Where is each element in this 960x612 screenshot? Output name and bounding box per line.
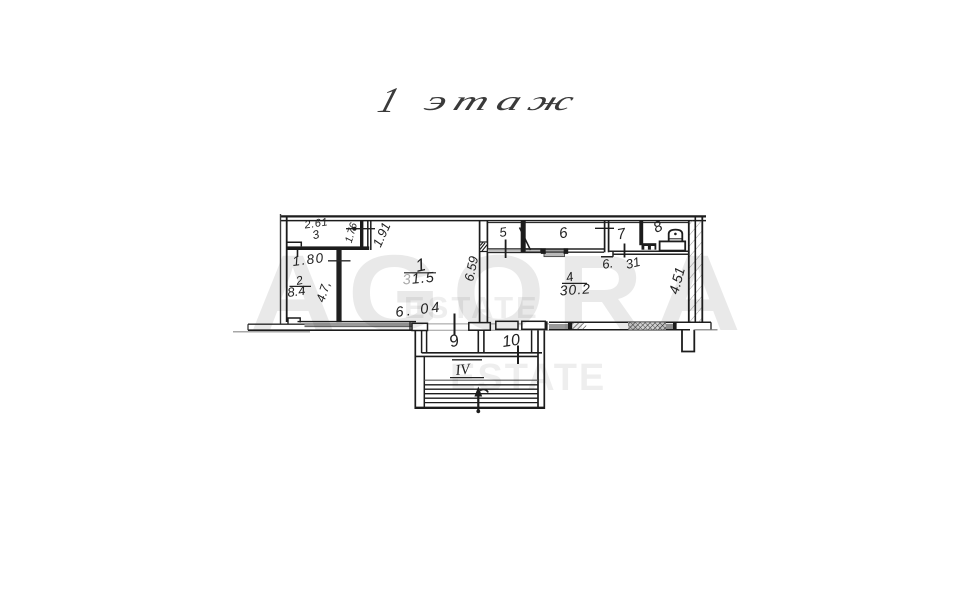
svg-text:этаж: этаж <box>421 85 587 116</box>
svg-text:ESTATE: ESTATE <box>404 290 540 325</box>
svg-text:ESTATE: ESTATE <box>450 357 606 399</box>
